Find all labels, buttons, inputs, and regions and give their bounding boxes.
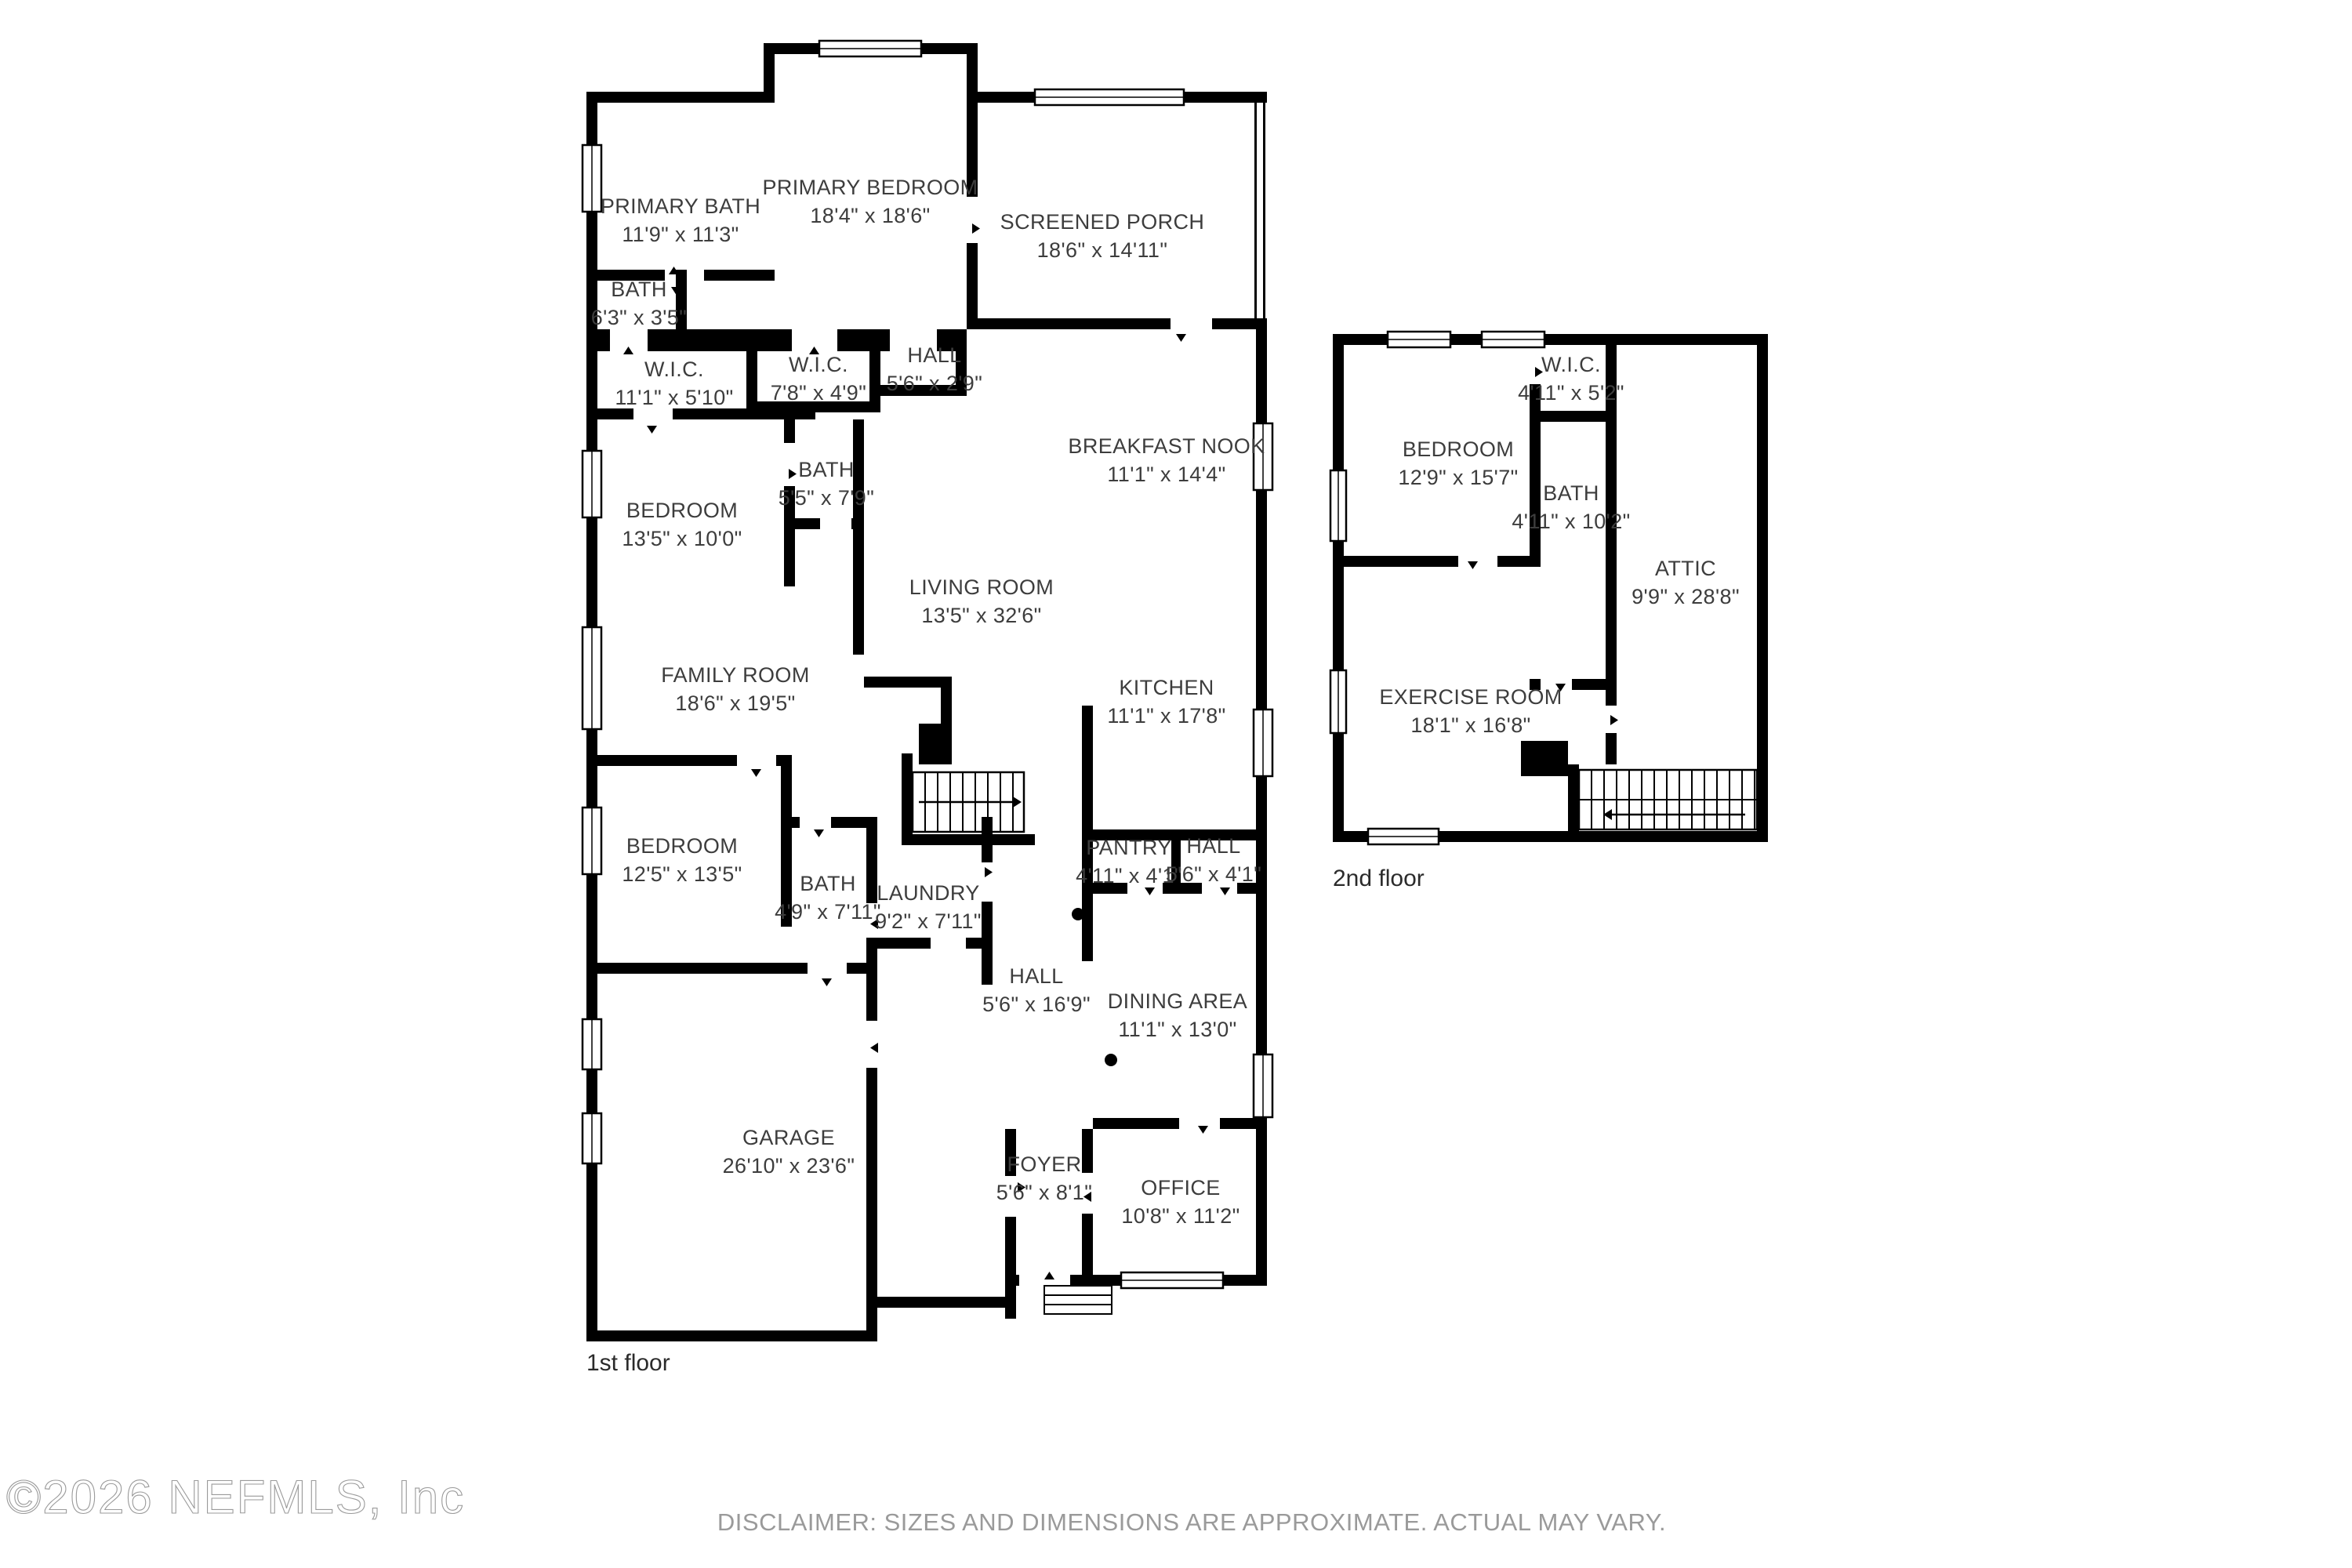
door-swing-icon [789,469,797,479]
floor-plan-page: PRIMARY BATH11'9" x 11'3"PRIMARY BEDROOM… [0,0,2352,1568]
room-label-kitchen: KITCHEN [1119,676,1214,699]
door-swing-icon [623,347,633,354]
room-label-hall-small: HALL [907,343,961,367]
door-swing-icon [1198,1126,1208,1134]
room-dims-garage: 26'10" x 23'6" [723,1154,855,1178]
room-dims-bedroom-3: 12'9" x 15'7" [1398,466,1518,489]
room-label-garage: GARAGE [742,1126,835,1149]
room-dims-attic: 9'9" x 28'8" [1632,585,1740,608]
room-dims-primary-bath: 11'9" x 11'3" [622,223,739,246]
room-label-wic-2: W.I.C. [789,353,848,376]
room-dims-primary-bedroom: 18'4" x 18'6" [810,204,930,227]
room-dims-screened-porch: 18'6" x 14'11" [1037,238,1168,262]
stair-direction-arrow [1013,797,1022,808]
floor-plan-drawing: PRIMARY BATH11'9" x 11'3"PRIMARY BEDROOM… [0,0,2352,1568]
room-label-dining-area: DINING AREA [1108,989,1247,1013]
room-label-foyer: FOYER [1007,1152,1081,1176]
room-dims-bath-2: 5'5" x 7'9" [779,486,874,510]
room-label-living-room: LIVING ROOM [909,575,1054,599]
room-dims-kitchen: 11'1" x 17'8" [1107,704,1225,728]
room-dims-dining-area: 11'1" x 13'0" [1118,1018,1236,1041]
room-label-bath-4: BATH [1543,481,1599,505]
room-label-exercise-room: EXERCISE ROOM [1379,685,1562,709]
door-swing-icon [1610,715,1618,725]
room-dims-wic-1: 11'1" x 5'10" [615,386,733,409]
room-label-bath-small: BATH [611,278,667,301]
door-swing-icon [972,223,980,234]
room-dims-bath-3: 4'9" x 7'11" [775,900,881,924]
room-label-office: OFFICE [1141,1176,1220,1200]
room-dims-hall-2: 5'6" x 4'1" [1166,862,1261,886]
room-label-wic-1: W.I.C. [644,358,704,381]
room-label-breakfast-nook: BREAKFAST NOOK [1068,434,1265,458]
door-swing-icon [870,1043,878,1053]
disclaimer-text: DISCLAIMER: SIZES AND DIMENSIONS ARE APP… [717,1508,1666,1536]
door-swing-icon [814,829,824,837]
room-label-pantry: PANTRY [1086,836,1171,859]
door-swing-icon [751,769,761,777]
door-swing-icon [1220,887,1230,895]
room-label-primary-bedroom: PRIMARY BEDROOM [762,176,978,199]
second-floor-label: 2nd floor [1333,866,1425,891]
door-stop-dot [1105,1054,1117,1066]
room-dims-bath-small: 6'3" x 3'5" [591,306,687,329]
room-label-hall-2: HALL [1186,834,1240,858]
first-floor-label: 1st floor [586,1350,670,1376]
room-label-primary-bath: PRIMARY BATH [601,194,760,218]
room-dims-wic-2: 7'8" x 4'9" [771,381,866,405]
room-dims-exercise-room: 18'1" x 16'8" [1410,713,1530,737]
copyright-watermark: ©2026 NEFMLS, Inc [6,1471,465,1523]
door-swing-icon [985,867,993,877]
room-dims-living-room: 13'5" x 32'6" [921,604,1041,627]
room-dims-hall-small: 5'6" x 2'9" [887,372,982,395]
door-swing-icon [647,426,657,434]
room-dims-family-room: 18'6" x 19'5" [675,691,795,715]
door-swing-icon [1044,1272,1054,1279]
room-dims-wic-3: 4'11" x 5'2" [1518,381,1624,405]
room-label-hall-3: HALL [1009,964,1063,988]
room-dims-office: 10'8" x 11'2" [1121,1204,1240,1228]
room-label-family-room: FAMILY ROOM [661,663,809,687]
staircase-symbols [913,770,1757,1314]
room-label-wic-3: W.I.C. [1541,353,1601,376]
door-swing-icon [822,978,832,986]
door-stop-dot [1072,908,1084,920]
room-dims-foyer: 5'6" x 8'1" [996,1181,1092,1204]
door-swing-icon [1145,887,1155,895]
room-label-bath-3: BATH [800,872,856,895]
room-label-bedroom-2: BEDROOM [626,834,738,858]
room-label-bedroom-1: BEDROOM [626,499,738,522]
second-floor-room-labels: W.I.C.4'11" x 5'2"BEDROOM12'9" x 15'7"BA… [1379,353,1740,737]
room-dims-breakfast-nook: 11'1" x 14'4" [1107,463,1225,486]
room-label-bedroom-3: BEDROOM [1403,437,1514,461]
door-swing-icon [1468,561,1478,569]
room-label-screened-porch: SCREENED PORCH [1000,210,1205,234]
room-label-bath-2: BATH [798,458,855,481]
door-swing-icon [1176,334,1186,342]
room-dims-laundry: 9'2" x 7'11" [875,909,982,933]
room-label-laundry: LAUNDRY [877,881,979,905]
room-dims-bath-4: 4'11" x 10'2" [1512,510,1630,533]
room-dims-bedroom-1: 13'5" x 10'0" [622,527,742,550]
room-dims-hall-3: 5'6" x 16'9" [982,993,1091,1016]
room-dims-bedroom-2: 12'5" x 13'5" [622,862,742,886]
room-label-attic: ATTIC [1655,557,1716,580]
